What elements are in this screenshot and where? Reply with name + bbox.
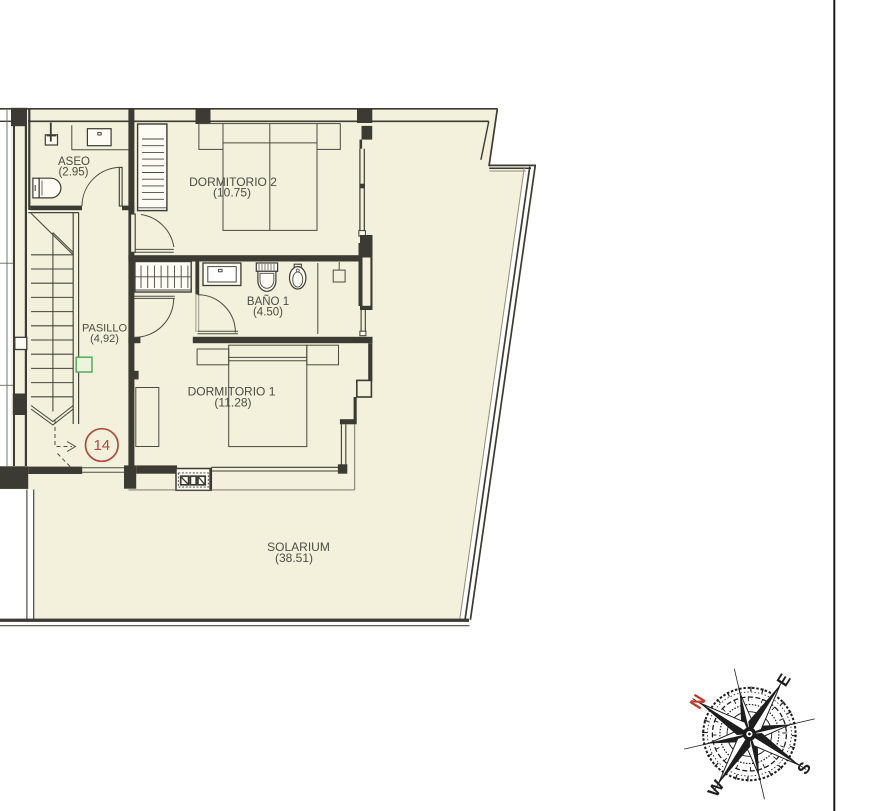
svg-text:N: N — [686, 691, 710, 713]
svg-text:(4,92): (4,92) — [90, 333, 119, 345]
svg-text:(11.28): (11.28) — [214, 396, 251, 410]
svg-text:14: 14 — [93, 437, 110, 454]
svg-text:(2.95): (2.95) — [58, 167, 88, 179]
svg-text:(4.50): (4.50) — [253, 306, 283, 318]
svg-text:E: E — [774, 671, 795, 690]
svg-text:S: S — [794, 759, 815, 778]
svg-text:W: W — [705, 777, 729, 800]
svg-text:(38.51): (38.51) — [275, 551, 313, 565]
svg-text:(10.75): (10.75) — [213, 185, 251, 199]
